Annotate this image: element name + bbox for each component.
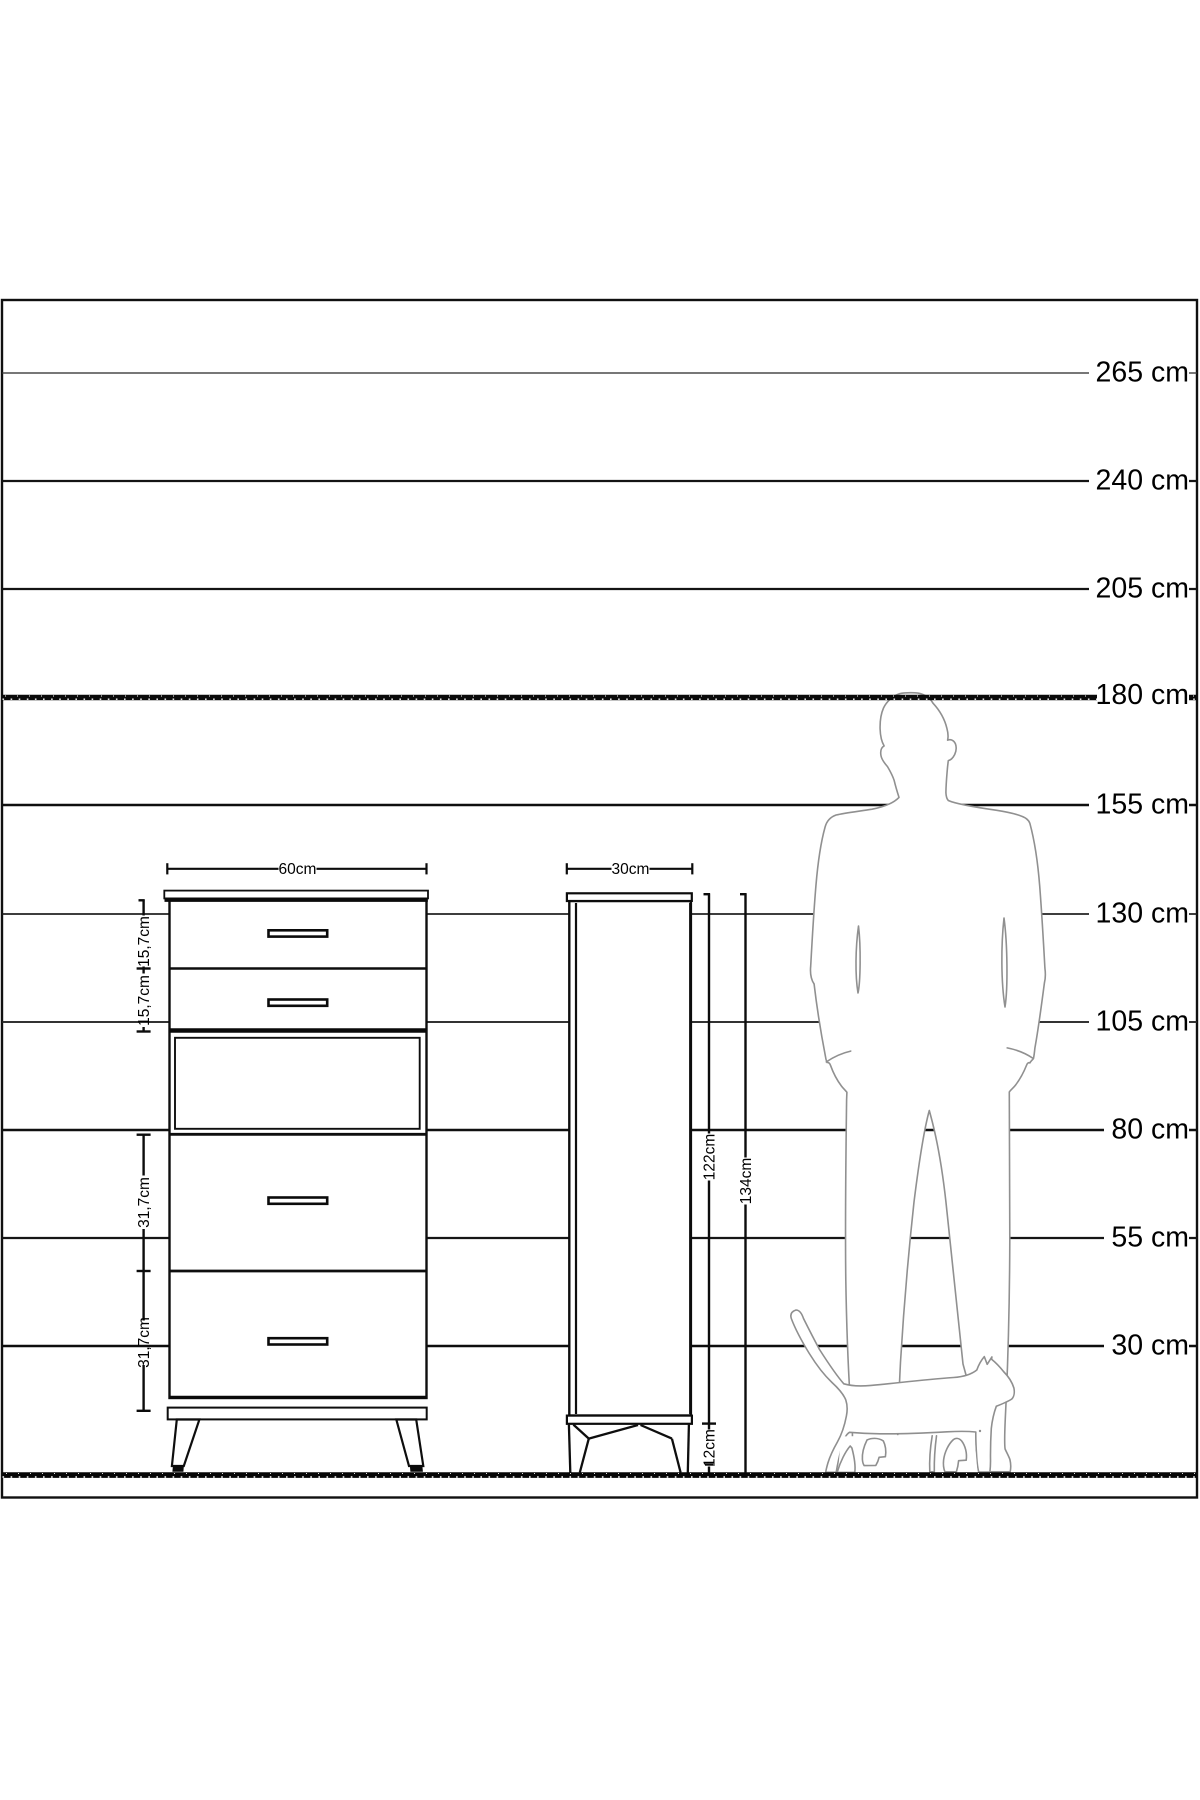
svg-text:30cm: 30cm: [612, 861, 650, 878]
svg-text:55 cm: 55 cm: [1111, 1222, 1189, 1254]
svg-text:15,7cm: 15,7cm: [136, 916, 153, 967]
svg-text:155 cm: 155 cm: [1096, 789, 1189, 821]
svg-text:105 cm: 105 cm: [1096, 1006, 1189, 1038]
svg-text:15,7cm: 15,7cm: [136, 975, 153, 1026]
svg-text:265 cm: 265 cm: [1096, 357, 1189, 389]
svg-text:30 cm: 30 cm: [1111, 1330, 1189, 1362]
svg-text:134cm: 134cm: [738, 1158, 755, 1205]
svg-text:12cm: 12cm: [702, 1429, 719, 1467]
svg-text:130 cm: 130 cm: [1096, 898, 1189, 930]
svg-text:240 cm: 240 cm: [1096, 465, 1189, 497]
svg-text:31,7cm: 31,7cm: [136, 1317, 153, 1368]
svg-text:31,7cm: 31,7cm: [136, 1177, 153, 1228]
svg-text:60cm: 60cm: [279, 861, 317, 878]
svg-text:205 cm: 205 cm: [1096, 573, 1189, 605]
svg-text:80 cm: 80 cm: [1111, 1114, 1189, 1146]
svg-text:122cm: 122cm: [702, 1134, 719, 1181]
svg-text:180 cm: 180 cm: [1096, 679, 1189, 711]
